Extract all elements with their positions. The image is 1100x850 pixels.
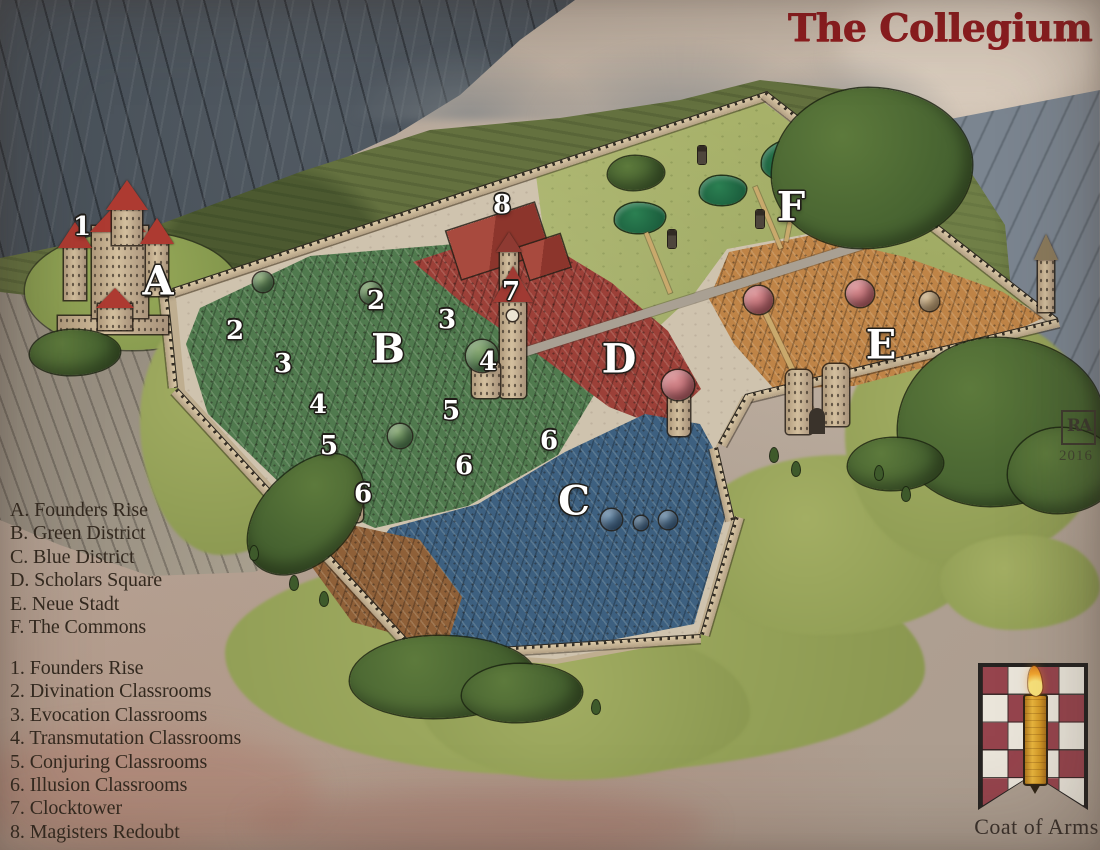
map-district-label: B bbox=[371, 326, 405, 373]
map-location-label: 2 bbox=[226, 316, 244, 346]
map-location-label: 5 bbox=[320, 431, 338, 461]
map-district-label: D bbox=[602, 336, 637, 383]
legend-location-list: 1. Founders Rise2. Divination Classrooms… bbox=[10, 657, 241, 844]
legend-item: 3. Evocation Classrooms bbox=[10, 704, 241, 727]
signature-year: 2016 bbox=[1052, 448, 1100, 465]
map-district-label: A bbox=[142, 258, 173, 305]
map-location-label: 2 bbox=[367, 286, 385, 316]
legend-item: 4. Transmutation Classrooms bbox=[10, 727, 241, 750]
legend-item: C. Blue District bbox=[10, 546, 162, 569]
signature-monogram: RA bbox=[1061, 410, 1096, 445]
legend-item: 6. Illusion Classrooms bbox=[10, 774, 241, 797]
legend-district-list: A. Founders RiseB. Green DistrictC. Blue… bbox=[10, 499, 162, 639]
map-location-label: 4 bbox=[309, 390, 327, 420]
coat-of-arms: Coat of Arms bbox=[973, 658, 1100, 843]
legend-item: 5. Conjuring Classrooms bbox=[10, 751, 241, 774]
legend-item: E. Neue Stadt bbox=[10, 593, 162, 616]
map-location-label: 6 bbox=[455, 451, 473, 481]
map-district-label: C bbox=[558, 478, 590, 525]
legend-item: 2. Divination Classrooms bbox=[10, 680, 241, 703]
legend-item: 1. Founders Rise bbox=[10, 657, 241, 680]
map-illustration: ABCDEF12233445566678 The Collegium A. Fo… bbox=[0, 0, 1100, 850]
page-title: The Collegium bbox=[788, 5, 1092, 50]
map-district-label: F bbox=[777, 184, 805, 231]
legend-item: 8. Magisters Redoubt bbox=[10, 821, 241, 844]
map-location-label: 8 bbox=[493, 190, 511, 220]
coat-of-arms-caption: Coat of Arms bbox=[973, 814, 1100, 840]
legend-item: A. Founders Rise bbox=[10, 499, 162, 522]
map-location-label: 6 bbox=[540, 426, 558, 456]
legend-item: 7. Clocktower bbox=[10, 797, 241, 820]
map-location-label: 3 bbox=[438, 305, 456, 335]
map-location-label: 1 bbox=[73, 212, 91, 242]
map-location-label: 6 bbox=[354, 479, 372, 509]
legend-item: F. The Commons bbox=[10, 616, 162, 639]
map-location-label: 5 bbox=[442, 396, 460, 426]
legend-item: D. Scholars Square bbox=[10, 569, 162, 592]
map-district-label: E bbox=[866, 322, 897, 369]
map-location-label: 7 bbox=[502, 277, 520, 307]
candle-icon bbox=[1023, 694, 1048, 786]
legend-item: B. Green District bbox=[10, 522, 162, 545]
map-location-label: 4 bbox=[479, 347, 497, 377]
map-location-label: 3 bbox=[274, 349, 292, 379]
